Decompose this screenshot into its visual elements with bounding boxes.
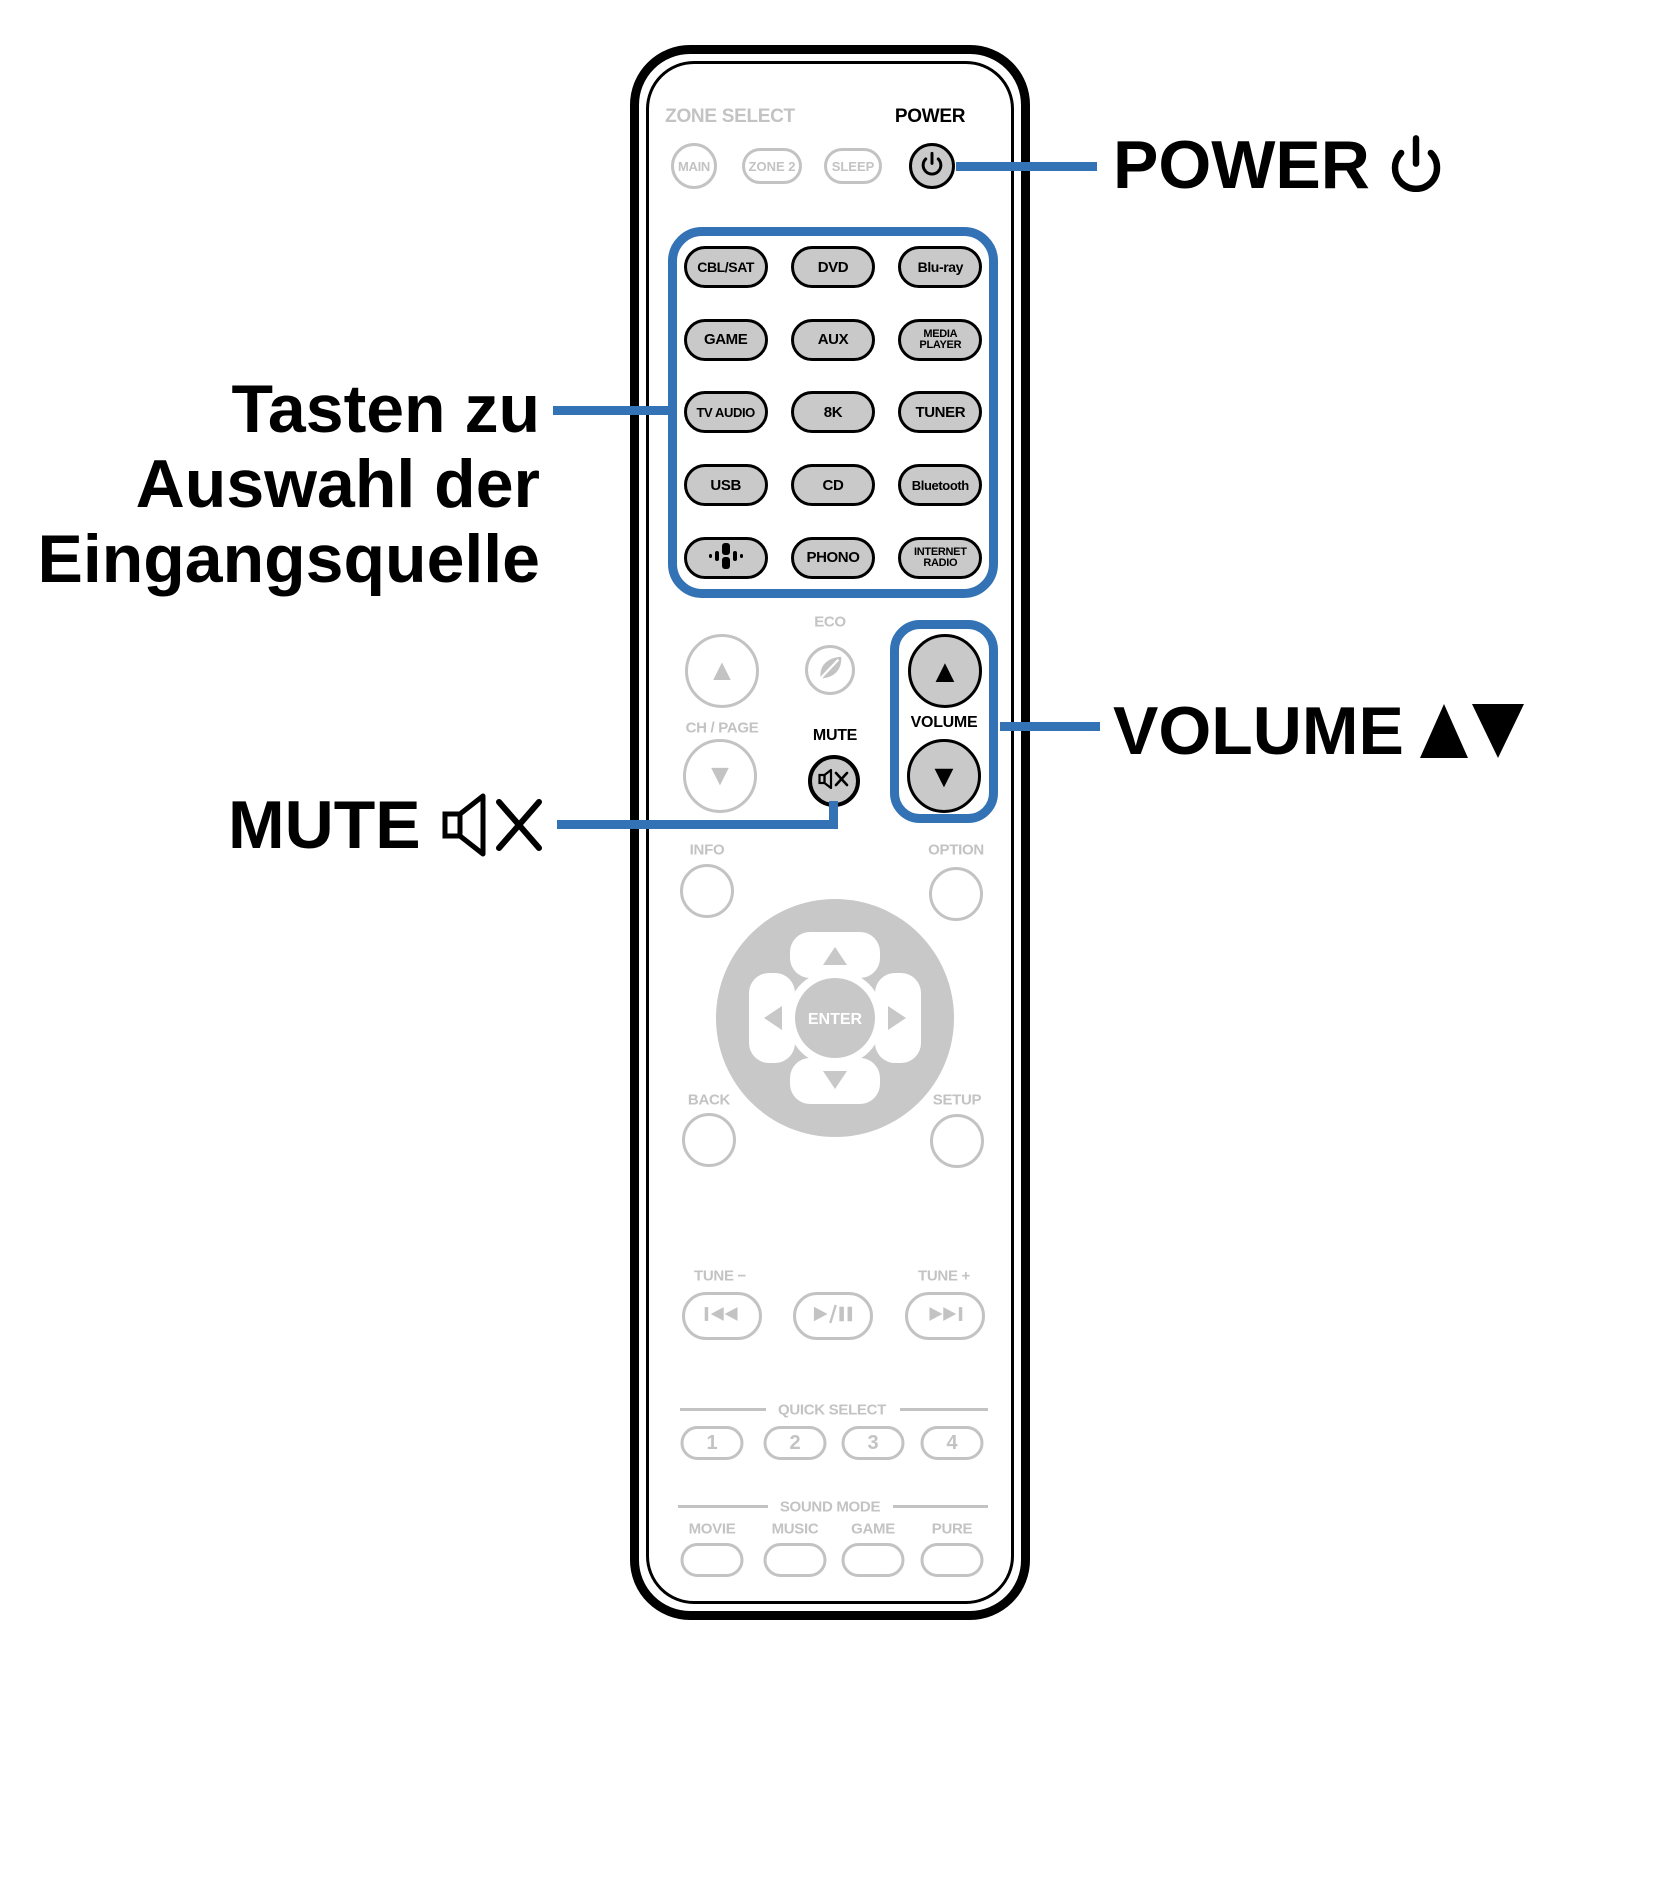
input-source-annotation: Tasten zu Auswahl der Eingangsquelle: [37, 372, 540, 597]
back-button[interactable]: [682, 1113, 736, 1167]
annotation-line: Tasten zu: [37, 372, 540, 447]
input-source-grid: CBL/SAT DVD Blu-ray GAME AUX MEDIA PLAYE…: [672, 231, 994, 594]
input-button-aux[interactable]: AUX: [791, 319, 875, 361]
input-button-game[interactable]: GAME: [684, 319, 768, 361]
volume-annotation-label: VOLUME: [1113, 692, 1404, 770]
divider: [678, 1505, 768, 1508]
input-button-label: MEDIA PLAYER: [919, 329, 961, 351]
input-button-label: TUNER: [915, 404, 965, 421]
input-button-label: DVD: [818, 259, 848, 276]
tune-minus-label: TUNE −: [694, 1268, 746, 1285]
navigation-pad[interactable]: ENTER: [716, 899, 954, 1137]
game-label: GAME: [851, 1521, 895, 1538]
input-button-label: Blu-ray: [918, 259, 963, 275]
quick-select-label: QUICK SELECT: [778, 1402, 886, 1419]
zone2-button[interactable]: ZONE 2: [742, 148, 802, 184]
mute-button-label: MUTE: [813, 727, 857, 745]
input-button-phono[interactable]: PHONO: [791, 537, 875, 579]
play-pause-button[interactable]: [793, 1292, 873, 1340]
input-button-label: Bluetooth: [912, 478, 969, 493]
quick-select-label: 3: [867, 1432, 878, 1455]
input-button-usb[interactable]: USB: [684, 464, 768, 506]
eco-leaf-icon: [816, 654, 844, 687]
skip-forward-button[interactable]: [905, 1292, 985, 1340]
power-button[interactable]: [909, 143, 955, 189]
page: ZONE SELECT POWER MAIN ZONE 2 SLEEP CBL/…: [0, 0, 1665, 1878]
input-button-label: AUX: [818, 331, 848, 348]
mute-callout-line: [557, 820, 838, 829]
sound-mode-game-button[interactable]: [842, 1543, 905, 1577]
sleep-button[interactable]: SLEEP: [824, 148, 882, 184]
annotation-line: Eingangsquelle: [37, 522, 540, 597]
volume-buttons-label: VOLUME: [911, 714, 978, 732]
mute-callout-line-vertical: [829, 801, 838, 829]
main-button-label: MAIN: [678, 159, 710, 174]
input-button-heos[interactable]: [684, 537, 768, 579]
enter-label: ENTER: [808, 1011, 863, 1028]
power-callout-line: [956, 162, 1097, 171]
zone-select-label: ZONE SELECT: [665, 106, 795, 128]
skip-back-button[interactable]: [682, 1292, 762, 1340]
skip-forward-icon: [926, 1305, 964, 1328]
input-button-8k[interactable]: 8K: [791, 391, 875, 433]
input-button-label: GAME: [704, 331, 747, 348]
input-callout-line: [553, 406, 670, 415]
movie-label: MOVIE: [689, 1521, 736, 1538]
divider: [680, 1408, 766, 1411]
sound-mode-music-button[interactable]: [764, 1543, 827, 1577]
quick-select-3-button[interactable]: 3: [842, 1426, 905, 1460]
heos-icon: [706, 541, 746, 575]
input-button-label: USB: [710, 477, 740, 494]
setup-button[interactable]: [930, 1114, 984, 1168]
eco-label: ECO: [814, 614, 846, 631]
down-triangle-icon: ▼: [928, 758, 960, 795]
input-button-label: PHONO: [806, 549, 859, 566]
up-triangle-icon: ▲: [929, 653, 961, 690]
back-label: BACK: [688, 1092, 730, 1109]
volume-annotation: VOLUME: [1113, 693, 1524, 769]
info-label: INFO: [690, 842, 725, 859]
sleep-button-label: SLEEP: [832, 159, 875, 174]
sound-mode-label: SOUND MODE: [780, 1499, 880, 1516]
input-button-internet-radio[interactable]: INTERNET RADIO: [898, 537, 982, 579]
divider: [893, 1505, 988, 1508]
input-button-cbl-sat[interactable]: CBL/SAT: [684, 246, 768, 288]
quick-select-label: 4: [946, 1432, 957, 1455]
mute-annotation: MUTE: [228, 787, 543, 863]
play-pause-icon: [812, 1304, 854, 1329]
volume-up-down-arrows-icon: [1420, 702, 1524, 760]
volume-down-button[interactable]: ▼: [907, 739, 981, 813]
input-button-label: CBL/SAT: [697, 259, 754, 275]
skip-back-icon: [703, 1305, 741, 1328]
sound-mode-movie-button[interactable]: [681, 1543, 744, 1577]
input-button-bluetooth[interactable]: Bluetooth: [898, 464, 982, 506]
quick-select-label: 2: [789, 1432, 800, 1455]
mute-button[interactable]: [808, 755, 860, 807]
input-button-tuner[interactable]: TUNER: [898, 391, 982, 433]
input-button-cd[interactable]: CD: [791, 464, 875, 506]
pure-label: PURE: [932, 1521, 972, 1538]
volume-callout-line: [1000, 722, 1100, 731]
power-button-label: POWER: [895, 106, 965, 128]
sound-mode-pure-button[interactable]: [921, 1543, 984, 1577]
input-button-media-player[interactable]: MEDIA PLAYER: [898, 319, 982, 361]
eco-button[interactable]: [805, 645, 855, 695]
mute-icon: [441, 788, 543, 862]
input-button-blu-ray[interactable]: Blu-ray: [898, 246, 982, 288]
power-icon: [919, 151, 945, 182]
quick-select-4-button[interactable]: 4: [921, 1426, 984, 1460]
zone2-button-label: ZONE 2: [749, 159, 796, 174]
up-triangle-icon: ▲: [707, 654, 737, 688]
power-annotation: POWER: [1113, 127, 1444, 203]
quick-select-label: 1: [706, 1432, 717, 1455]
channel-page-down-button[interactable]: ▼: [683, 739, 757, 813]
channel-page-up-button[interactable]: ▲: [685, 634, 759, 708]
main-button[interactable]: MAIN: [671, 143, 717, 189]
power-annotation-label: POWER: [1113, 126, 1370, 204]
music-label: MUSIC: [772, 1521, 819, 1538]
setup-label: SETUP: [933, 1092, 982, 1109]
input-button-label: 8K: [824, 404, 842, 421]
input-button-label: CD: [823, 477, 844, 494]
option-label: OPTION: [928, 842, 984, 859]
mute-icon: [818, 767, 850, 796]
mute-annotation-label: MUTE: [228, 786, 421, 864]
power-icon: [1388, 134, 1444, 196]
input-button-label: INTERNET RADIO: [914, 547, 967, 569]
annotation-line: Auswahl der: [37, 447, 540, 522]
input-button-tv-audio[interactable]: TV AUDIO: [684, 391, 768, 433]
tune-plus-label: TUNE +: [918, 1268, 970, 1285]
volume-up-button[interactable]: ▲: [908, 634, 982, 708]
quick-select-1-button[interactable]: 1: [681, 1426, 744, 1460]
input-button-label: TV AUDIO: [696, 405, 754, 420]
down-triangle-icon: ▼: [705, 759, 735, 793]
divider: [900, 1408, 988, 1411]
quick-select-2-button[interactable]: 2: [764, 1426, 827, 1460]
input-button-dvd[interactable]: DVD: [791, 246, 875, 288]
ch-page-label: CH / PAGE: [686, 720, 759, 737]
